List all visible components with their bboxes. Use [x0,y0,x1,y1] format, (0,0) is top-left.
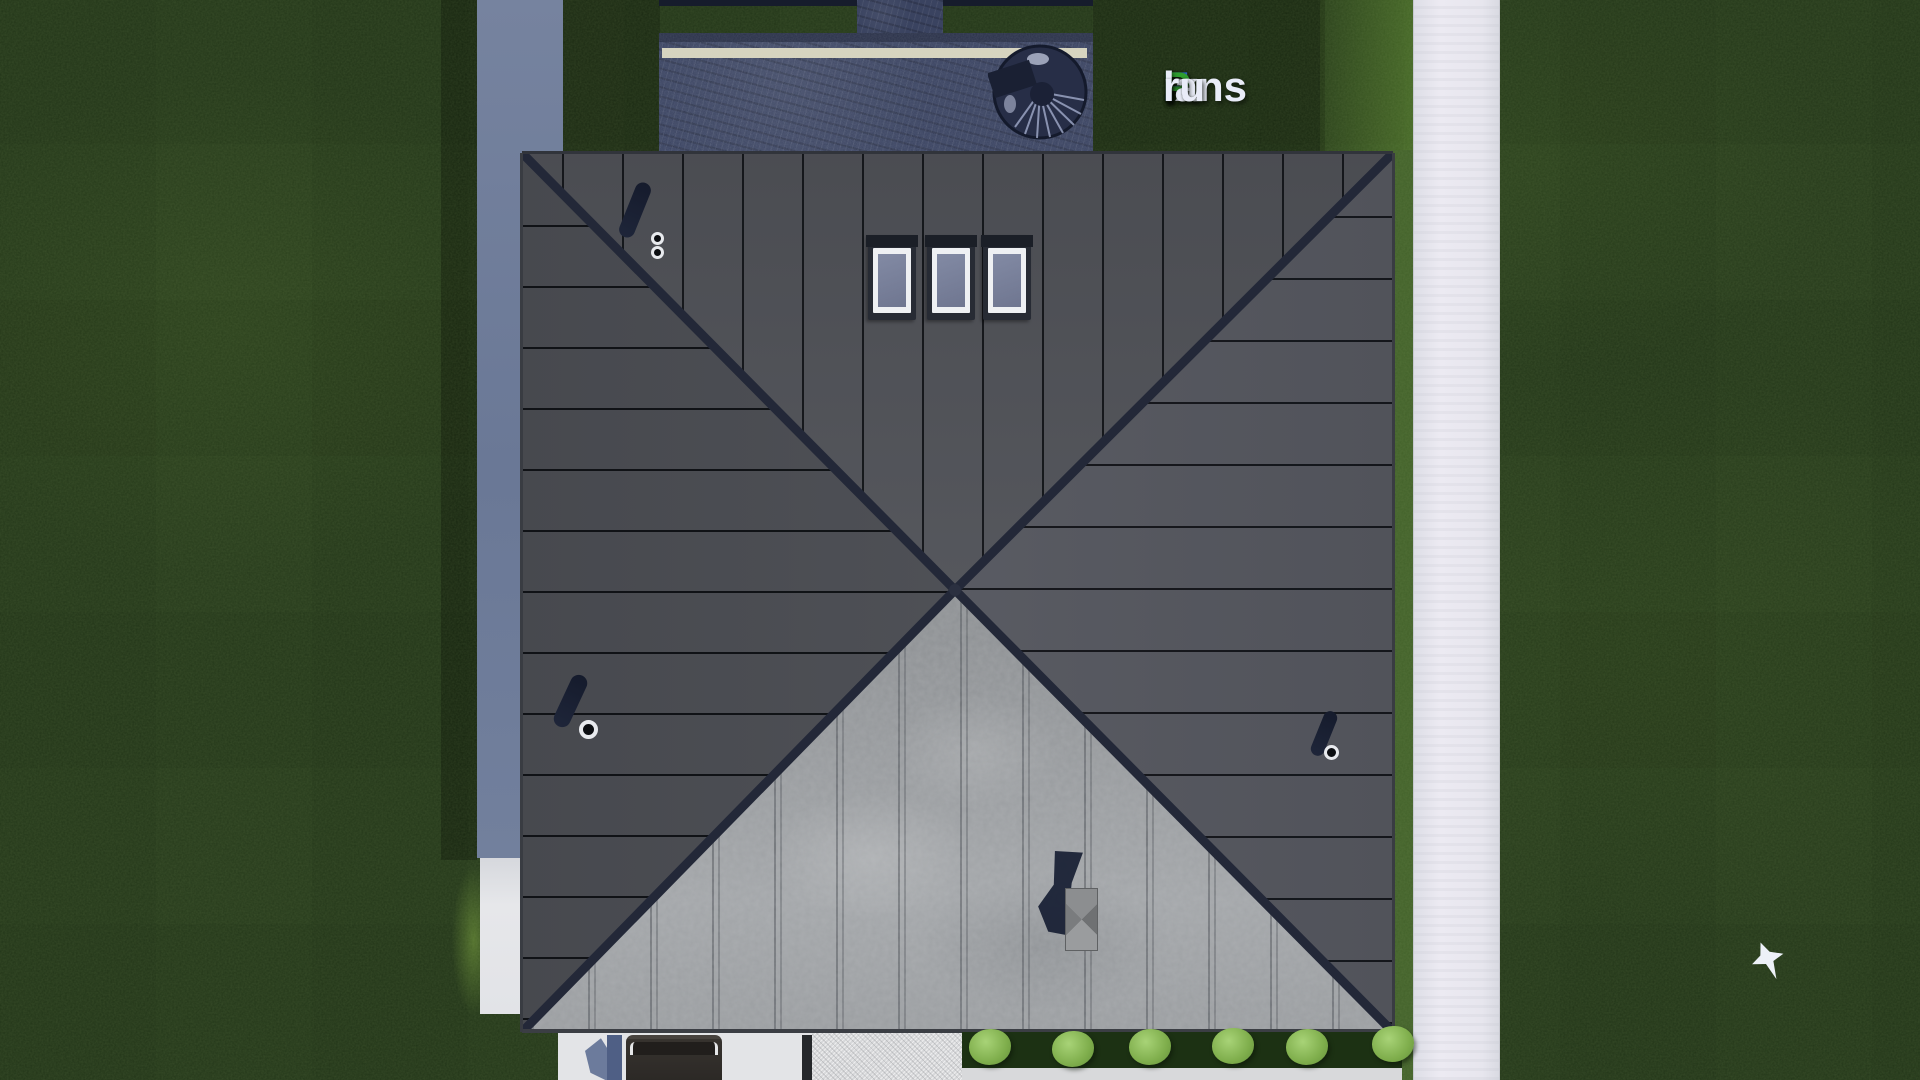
concrete-walkway [812,1033,965,1080]
skylight-flap [981,235,1033,247]
aerial-render-canvas: F ix P lans . ru [0,0,1920,1080]
skylight-glass [993,254,1021,307]
parked-car [626,1035,722,1080]
vent-pipe [651,232,664,245]
skylight-flap [866,235,918,247]
spiral-staircase [988,42,1094,148]
planter-strip [607,1035,622,1080]
bottom-pavement [962,1068,1402,1080]
roof-eave-left [520,153,523,1032]
skylight-window [868,235,916,320]
left-walkway [480,858,525,1014]
skylight-glass [937,254,965,307]
skylight-window [983,235,1031,320]
chimney-cap [1065,888,1098,951]
roof-eave-right [1392,153,1395,1032]
vent-pipe [651,246,664,259]
roof-eave-top [522,151,1393,154]
vent-pipe [1324,745,1339,760]
skylight-glass [878,254,906,307]
skylight-window [927,235,975,320]
logo-segment: ru [1163,64,1205,110]
skylight-flap [925,235,977,247]
hip-roof [522,153,1393,1032]
second-car-edge [800,1035,812,1080]
terrace-walkway-column [857,0,943,35]
vent-pipe [579,720,598,739]
hedge-bed [962,1032,1402,1070]
car-windshield [630,1042,718,1055]
right-sidewalk [1413,0,1500,1080]
